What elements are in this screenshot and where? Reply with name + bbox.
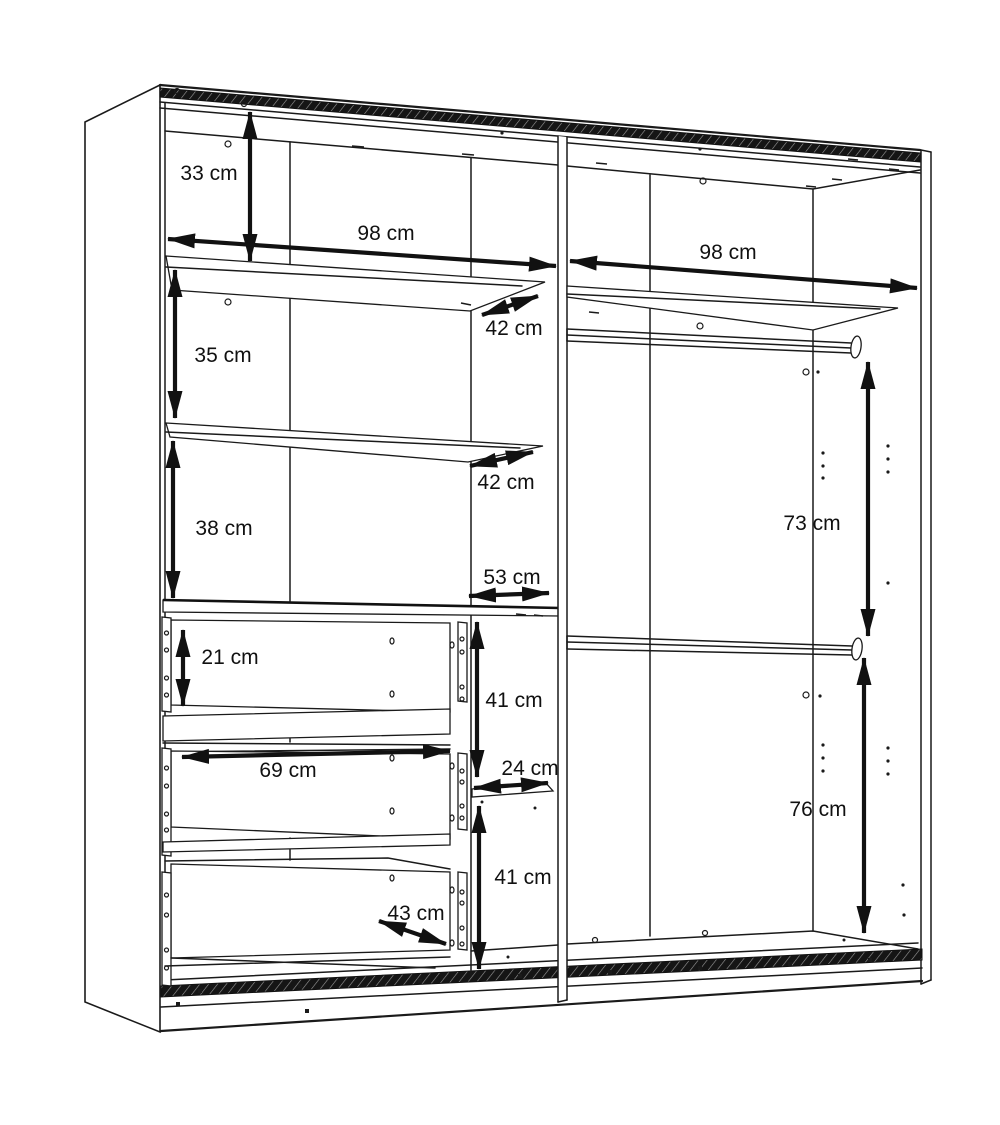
dim-24cm: 24 cm [474,757,559,788]
dim-label-21cm: 21 cm [201,646,258,669]
dim-label-76cm: 76 cm [789,798,846,821]
dim-38cm: 38 cm [173,441,253,598]
shelf-upper [166,256,545,311]
dim-label-98cm-right: 98 cm [699,241,756,264]
dim-98cm-right: 98 cm [570,241,917,288]
drawer-1 [162,617,467,741]
dim-label-42cm-upper: 42 cm [485,317,542,340]
dim-41cm-lower: 41 cm [479,806,552,969]
wardrobe-dimension-diagram: 33 cm 98 cm 42 cm 35 cm 42 cm 38 cm 53 c… [0,0,1000,1125]
drawer-unit-top-shelf [163,600,560,616]
hanging-rail-lower [567,636,863,661]
dim-label-41cm-upper: 41 cm [485,689,542,712]
dim-label-69cm: 69 cm [259,759,316,782]
right-side-panel [921,150,931,984]
center-divider [558,136,567,1002]
left-side-panel [85,85,165,1032]
dim-label-38cm: 38 cm [195,517,252,540]
dim-label-35cm: 35 cm [194,344,251,367]
dim-98cm-left: 98 cm [168,222,556,266]
dim-label-33cm: 33 cm [180,162,237,185]
diagram-canvas: 33 cm 98 cm 42 cm 35 cm 42 cm 38 cm 53 c… [0,0,1000,1125]
dim-label-42cm-lower: 42 cm [477,471,534,494]
dim-label-98cm-left: 98 cm [357,222,414,245]
dim-label-24cm: 24 cm [501,757,558,780]
dim-label-43cm: 43 cm [387,902,444,925]
right-shelf [567,286,898,330]
top-rail [160,85,920,173]
dim-73cm: 73 cm [783,362,868,636]
right-compartment [567,175,906,936]
dim-label-41cm-lower: 41 cm [494,866,551,889]
dim-41cm-upper: 41 cm [477,622,543,777]
shelf-lower [166,423,543,462]
dim-label-73cm: 73 cm [783,512,840,535]
dim-label-53cm: 53 cm [483,566,540,589]
dim-53cm: 53 cm [469,566,549,596]
hanging-rail-upper [567,329,862,359]
dim-76cm: 76 cm [789,658,864,933]
